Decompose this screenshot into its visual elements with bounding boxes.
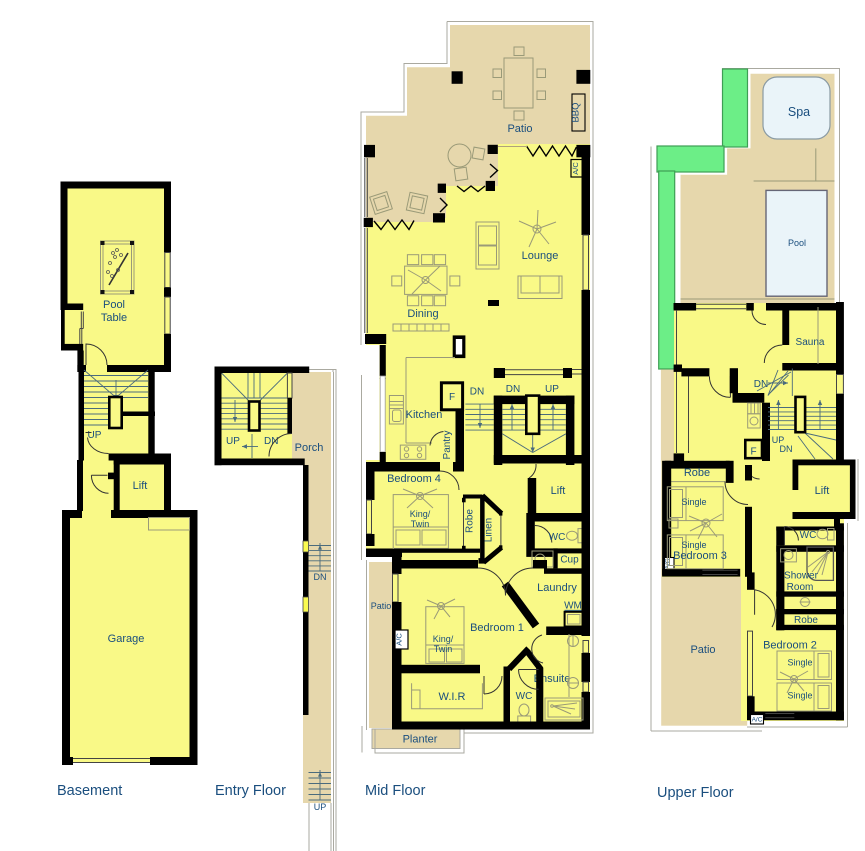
svg-text:Lift: Lift bbox=[551, 485, 566, 497]
svg-text:WC: WC bbox=[516, 691, 533, 702]
svg-text:DN: DN bbox=[780, 444, 793, 454]
svg-text:Pool: Pool bbox=[788, 238, 806, 248]
svg-text:Pool: Pool bbox=[103, 299, 125, 311]
svg-text:Pantry: Pantry bbox=[442, 431, 453, 460]
svg-text:Robe: Robe bbox=[684, 467, 710, 479]
svg-text:Robe: Robe bbox=[465, 509, 476, 533]
svg-text:BBQ: BBQ bbox=[571, 102, 582, 122]
svg-text:Entry Floor: Entry Floor bbox=[215, 783, 286, 799]
svg-text:Patio: Patio bbox=[690, 644, 715, 656]
svg-text:Single: Single bbox=[681, 497, 706, 507]
svg-text:Porch: Porch bbox=[295, 442, 324, 454]
svg-text:UP: UP bbox=[314, 802, 327, 812]
svg-text:Cup: Cup bbox=[560, 555, 579, 566]
svg-text:Table: Table bbox=[101, 312, 127, 324]
svg-text:A/C: A/C bbox=[571, 162, 580, 175]
svg-text:Bedroom 4: Bedroom 4 bbox=[387, 473, 441, 485]
svg-text:F: F bbox=[449, 392, 455, 403]
svg-text:Bedroom 2: Bedroom 2 bbox=[763, 640, 817, 652]
svg-text:W.I.R: W.I.R bbox=[439, 691, 466, 703]
svg-text:Shower: Shower bbox=[784, 571, 819, 582]
svg-text:DN: DN bbox=[470, 387, 484, 398]
svg-text:Twin: Twin bbox=[434, 644, 453, 654]
svg-text:Dining: Dining bbox=[407, 308, 438, 320]
svg-text:Room: Room bbox=[787, 582, 814, 593]
svg-text:Single: Single bbox=[787, 691, 812, 701]
svg-text:Bedroom 1: Bedroom 1 bbox=[470, 622, 524, 634]
svg-text:Kitchen: Kitchen bbox=[406, 409, 443, 421]
svg-text:DN: DN bbox=[314, 572, 327, 582]
svg-text:Basement: Basement bbox=[57, 783, 122, 799]
svg-text:F: F bbox=[750, 447, 756, 458]
svg-text:Planter: Planter bbox=[403, 734, 438, 746]
svg-text:WC: WC bbox=[549, 532, 566, 543]
svg-text:Single: Single bbox=[681, 540, 706, 550]
svg-text:Linen: Linen bbox=[484, 518, 495, 542]
svg-text:UP: UP bbox=[545, 384, 559, 395]
svg-text:Lift: Lift bbox=[133, 480, 148, 492]
svg-text:Lift: Lift bbox=[815, 485, 830, 497]
svg-text:Single: Single bbox=[787, 658, 812, 668]
svg-text:Sauna: Sauna bbox=[796, 337, 825, 348]
svg-text:Twin: Twin bbox=[411, 519, 430, 529]
svg-text:UP: UP bbox=[226, 436, 240, 447]
svg-text:A/C: A/C bbox=[395, 633, 404, 646]
svg-text:Garage: Garage bbox=[108, 633, 145, 645]
svg-text:WM: WM bbox=[564, 601, 582, 612]
svg-text:Bedroom 3: Bedroom 3 bbox=[673, 550, 727, 562]
svg-text:Patio: Patio bbox=[507, 123, 532, 135]
svg-text:Mid Floor: Mid Floor bbox=[365, 783, 426, 799]
svg-text:Spa: Spa bbox=[788, 105, 810, 119]
svg-text:King/: King/ bbox=[410, 509, 431, 519]
svg-text:WC: WC bbox=[800, 530, 817, 541]
svg-text:DN: DN bbox=[506, 384, 520, 395]
svg-text:Laundry: Laundry bbox=[537, 582, 577, 594]
svg-text:DN: DN bbox=[264, 436, 278, 447]
svg-text:A/C: A/C bbox=[752, 717, 763, 724]
svg-text:Robe: Robe bbox=[794, 615, 818, 626]
svg-text:Upper Floor: Upper Floor bbox=[657, 785, 734, 801]
svg-text:UP: UP bbox=[88, 430, 102, 441]
svg-text:King/: King/ bbox=[433, 634, 454, 644]
svg-text:Lounge: Lounge bbox=[522, 250, 559, 262]
svg-text:Patio: Patio bbox=[371, 601, 392, 611]
